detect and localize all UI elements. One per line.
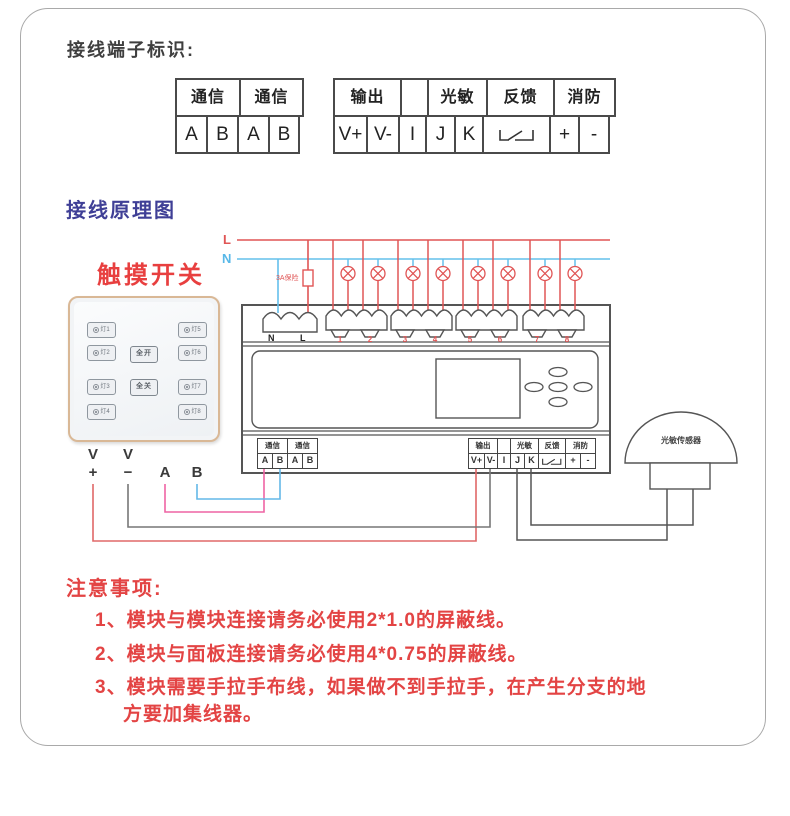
module-io-cell: V- (484, 453, 498, 469)
live-rail-label: L (223, 232, 231, 247)
module-up-button (549, 368, 567, 377)
bulb-icon (93, 409, 99, 415)
vplus-wire (93, 469, 476, 541)
panel-b-label: B (189, 464, 205, 481)
module-comm-header: 通信 (257, 438, 288, 454)
notes-line-2: 2、模块与面板连接请务必使用4*0.75的屏蔽线。 (95, 639, 528, 666)
notes-title: 注意事项: (66, 572, 163, 601)
module-io-cell: V+ (468, 453, 485, 469)
manual-page: 接线端子标识: 通信 通信 A B A B 输出 光敏 反馈 消防 V+ V- … (0, 0, 790, 816)
module-io-header-fire: 消防 (565, 438, 596, 454)
bulb-icon (93, 327, 99, 333)
sensor-base (650, 463, 710, 489)
module-io-header-output: 输出 (468, 438, 498, 454)
channel-number: 7 (532, 335, 542, 344)
all-off-button: 全关 (130, 379, 158, 396)
module-io-header-feedback: 反馈 (538, 438, 566, 454)
panel-button-label: 灯6 (191, 350, 200, 356)
lamp-symbols (341, 267, 582, 281)
panel-button-label: 灯2 (100, 350, 109, 356)
module-n-terminal-label: N (268, 333, 275, 343)
comm-a-wire (165, 469, 264, 512)
fuse-symbol (303, 270, 313, 286)
lamp-icon (436, 267, 450, 281)
notes-line-1: 1、模块与模块连接请务必使用2*1.0的屏蔽线。 (95, 605, 516, 632)
relay-contact-icon (541, 456, 563, 467)
bulb-icon (184, 350, 190, 356)
module-display (436, 359, 520, 418)
panel-lamp-button: 灯5 (178, 322, 207, 338)
sensor-j-wire (517, 469, 667, 540)
module-io-cell: J (510, 453, 525, 469)
lamp-icon (406, 267, 420, 281)
module-comm-cell: A (257, 453, 273, 469)
module-ok-button (549, 383, 567, 392)
lamp-icon (341, 267, 355, 281)
module-down-button (549, 398, 567, 407)
panel-lamp-button: 灯2 (87, 345, 116, 361)
module-comm-cell: B (302, 453, 318, 469)
module-comm-header: 通信 (287, 438, 318, 454)
panel-lamp-button: 灯3 (87, 379, 116, 395)
bulb-icon (184, 409, 190, 415)
panel-button-label: 灯3 (100, 384, 109, 390)
module-io-cell: I (497, 453, 511, 469)
module-io-cell: - (580, 453, 596, 469)
fuse-label: 3A保险 (276, 273, 299, 283)
module-io-cell: + (565, 453, 581, 469)
all-on-button: 全开 (130, 346, 158, 363)
lamp-icon (371, 267, 385, 281)
channel-number: 1 (335, 335, 345, 344)
touch-switch-panel: 灯1 灯2 灯3 灯4 灯5 灯6 灯7 灯8 全开 全关 (68, 296, 220, 442)
panel-button-label: 灯5 (191, 327, 200, 333)
neutral-rail-label: N (222, 251, 231, 266)
panel-lamp-button: 灯7 (178, 379, 207, 395)
panel-vminus-label-v: V (120, 446, 136, 463)
panel-vminus-label-sign: − (120, 464, 136, 481)
module-comm-cell: B (272, 453, 288, 469)
module-io-header-blank (497, 438, 511, 454)
lamp-icon (471, 267, 485, 281)
channel-number: 4 (430, 335, 440, 344)
panel-a-label: A (157, 464, 173, 481)
module-right-button (574, 383, 592, 392)
module-relay-contact-icon (538, 453, 566, 469)
panel-button-label: 灯4 (100, 409, 109, 415)
module-io-cell: K (524, 453, 539, 469)
module-left-button (525, 383, 543, 392)
channel-number: 5 (465, 335, 475, 344)
module-io-header-photo: 光敏 (510, 438, 539, 454)
nl-terminal-block (263, 313, 317, 333)
bulb-icon (184, 384, 190, 390)
panel-vplus-label-sign: + (85, 464, 101, 481)
panel-lamp-button: 灯8 (178, 404, 207, 420)
notes-line-3: 3、模块需要手拉手布线，如果做不到手拉手，在产生分支的地 (95, 672, 647, 699)
bulb-icon (93, 384, 99, 390)
channel-number: 2 (365, 335, 375, 344)
panel-button-label: 灯8 (191, 409, 200, 415)
sensor-label: 光敏传感器 (647, 435, 715, 446)
bulb-icon (184, 327, 190, 333)
panel-vplus-label-v: V (85, 446, 101, 463)
panel-button-label: 灯1 (100, 327, 109, 333)
notes-line-3-cont: 方要加集线器。 (123, 699, 263, 726)
channel-number: 8 (562, 335, 572, 344)
module-comm-cell: A (287, 453, 303, 469)
panel-lamp-button: 灯1 (87, 322, 116, 338)
module-l-terminal-label: L (300, 333, 306, 343)
bulb-icon (93, 350, 99, 356)
vminus-wire (128, 469, 490, 527)
channel-number: 6 (495, 335, 505, 344)
lamp-icon (501, 267, 515, 281)
lamp-neutral-stubs (348, 259, 575, 266)
panel-lamp-button: 灯6 (178, 345, 207, 361)
lamp-icon (538, 267, 552, 281)
panel-button-label: 灯7 (191, 384, 200, 390)
channel-number: 3 (400, 335, 410, 344)
panel-lamp-button: 灯4 (87, 404, 116, 420)
lamp-icon (568, 267, 582, 281)
